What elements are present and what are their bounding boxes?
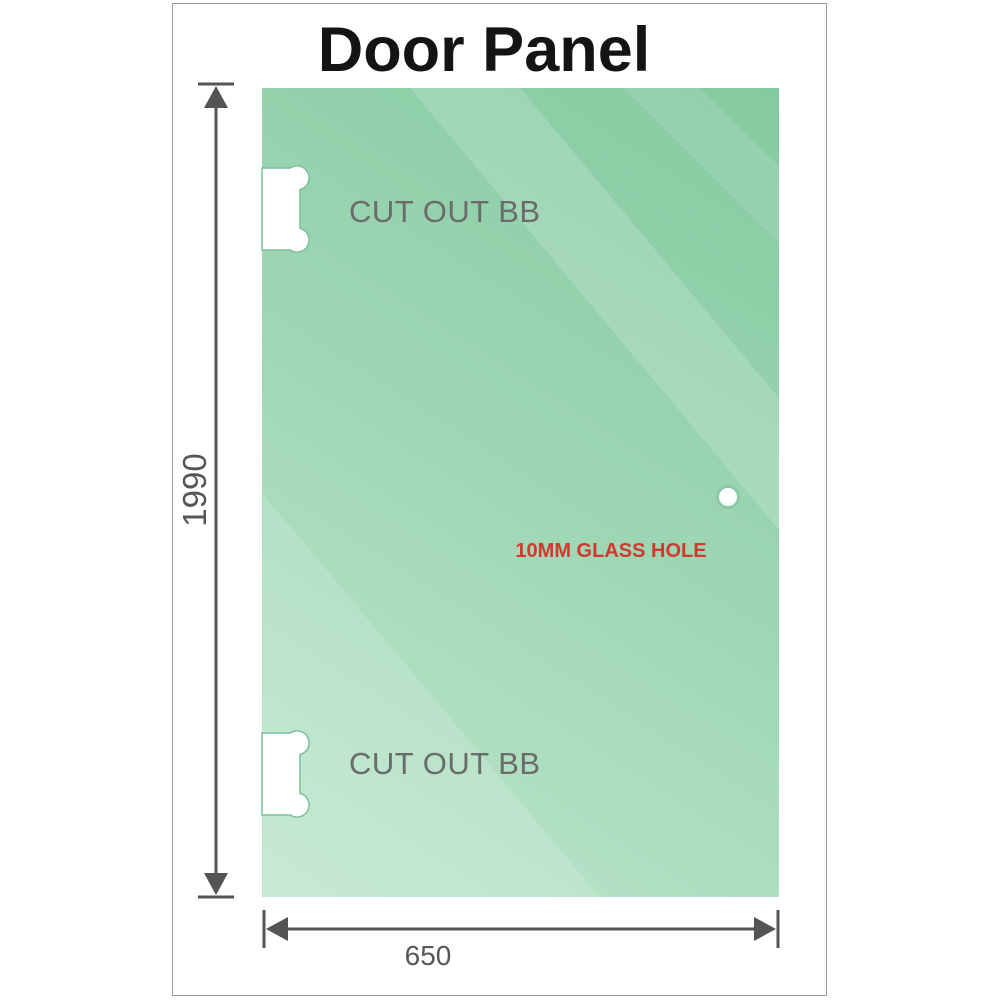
- cutout-bb-bottom-label: CUT OUT BB: [349, 746, 541, 781]
- glass-panel: CUT OUT BB CUT OUT BB 10MM GLASS HOLE: [262, 88, 779, 897]
- door-panel-diagram: Door Panel CUT OUT BB CUT OUT BB 10MM GL…: [0, 0, 1000, 1000]
- glass-hole-label: 10MM GLASS HOLE: [515, 540, 706, 562]
- height-dimension-value: 1990: [176, 453, 213, 526]
- diagram-svg: Door Panel CUT OUT BB CUT OUT BB 10MM GL…: [0, 0, 1000, 1000]
- cutout-bb-top-label: CUT OUT BB: [349, 194, 541, 229]
- width-dimension-value: 650: [405, 940, 452, 971]
- page-title: Door Panel: [318, 15, 651, 85]
- glass-hole: [718, 487, 739, 508]
